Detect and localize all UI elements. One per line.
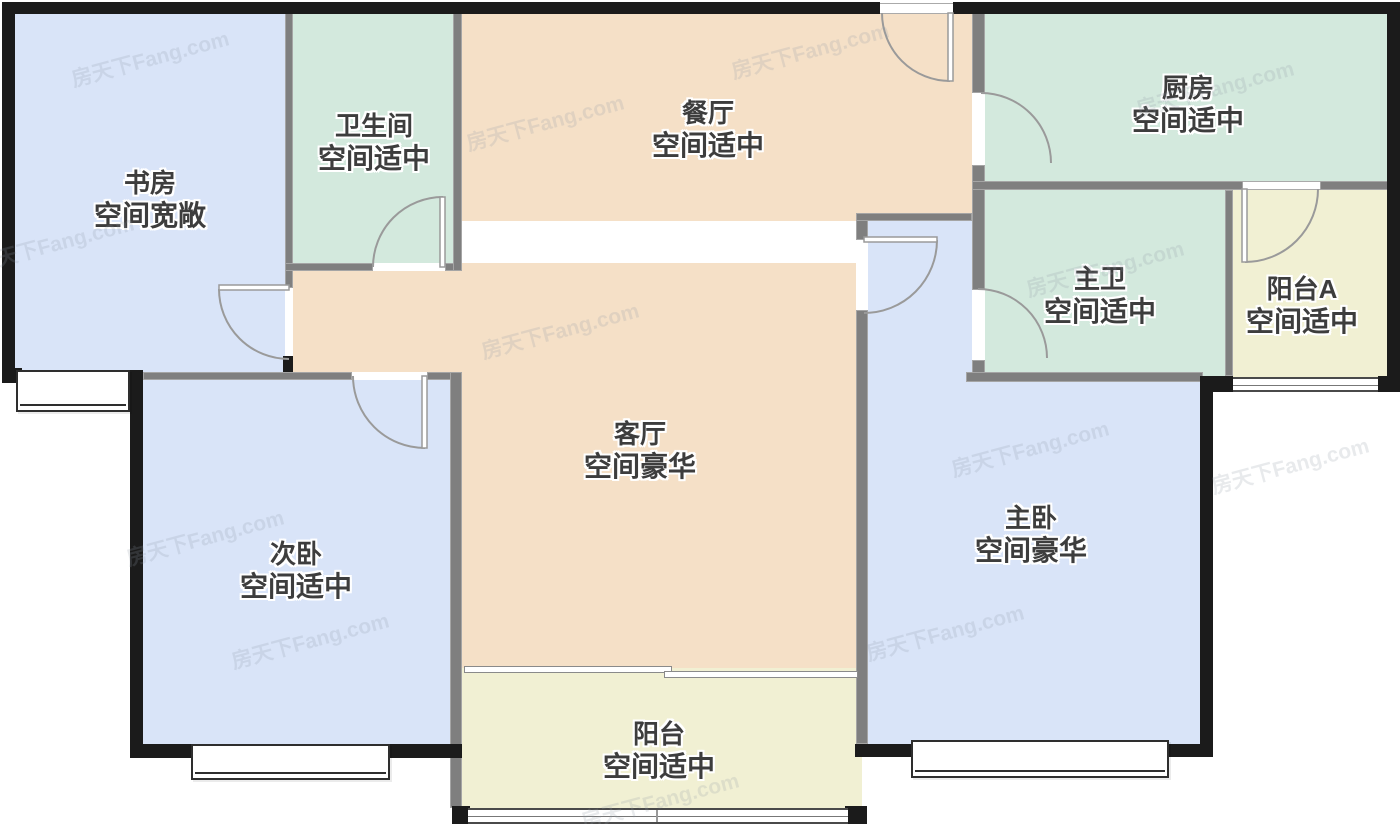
second-bedroom-bay-window — [191, 744, 390, 780]
wall-second-bedroom-right — [450, 372, 462, 808]
label-balcony-a: 阳台A 空间适中 — [1246, 274, 1358, 338]
wall-exterior-right — [1387, 2, 1400, 392]
balcony-sliding-door-left-panel — [464, 666, 672, 673]
kitchen-door-gap — [972, 93, 985, 165]
wall-second-bedroom-top-left — [143, 372, 352, 380]
wall-study-bathroom — [285, 13, 293, 288]
room-quality: 空间豪华 — [584, 450, 696, 483]
label-dining: 餐厅 空间适中 — [652, 98, 764, 162]
room-quality: 空间适中 — [240, 570, 352, 603]
room-quality: 空间豪华 — [975, 534, 1087, 567]
bathroom-door-gap — [373, 263, 445, 271]
master-bedroom-door-gap — [856, 240, 868, 310]
wall-bathroom-right — [453, 13, 462, 271]
wall-master-bath-bottom — [966, 372, 1203, 382]
wall-kitchen-bottom-left — [972, 181, 1243, 190]
room-quality: 空间适中 — [1246, 305, 1358, 338]
entry-door-threshold — [880, 3, 953, 14]
label-master-bedroom: 主卧 空间豪华 — [975, 503, 1087, 567]
wall-second-bedroom-bottom-left — [130, 744, 196, 758]
balcony-a-window — [1233, 377, 1378, 392]
master-bath-door-gap — [972, 290, 985, 360]
study-bay-window — [16, 370, 130, 412]
balcony-sliding-door-right-panel — [664, 671, 858, 678]
wall-master-bottom-left — [855, 744, 915, 757]
wall-balcony-a-corner-left — [1200, 376, 1233, 392]
room-name: 餐厅 — [652, 98, 764, 129]
wall-exterior-top-right — [953, 2, 1400, 14]
wall-kitchen-bottom-right — [1320, 181, 1392, 190]
wall-kitchen-left-upper — [972, 13, 985, 93]
label-bathroom: 卫生间 空间适中 — [318, 111, 430, 175]
room-quality: 空间适中 — [1044, 295, 1156, 328]
wall-exterior-master-right — [1200, 380, 1213, 757]
room-quality: 空间适中 — [652, 129, 764, 162]
room-name: 书房 — [94, 168, 206, 199]
label-living-room: 客厅 空间豪华 — [584, 419, 696, 483]
room-living-area — [450, 372, 868, 677]
label-second-bedroom: 次卧 空间适中 — [240, 539, 352, 603]
room-name: 客厅 — [584, 419, 696, 450]
watermark: 房天下Fang.com — [1208, 430, 1372, 501]
wall-exterior-top-left — [2, 2, 880, 14]
room-name: 主卧 — [975, 503, 1087, 534]
room-name: 阳台A — [1246, 274, 1358, 305]
wall-exterior-left — [2, 2, 15, 383]
room-quality: 空间适中 — [318, 142, 430, 175]
master-bedroom-vestibule-area — [860, 213, 978, 382]
wall-bathroom-bottom-left — [285, 263, 373, 271]
wall-balcony-corner-right — [845, 806, 867, 824]
room-name: 卫生间 — [318, 111, 430, 142]
second-bedroom-door-gap — [352, 372, 427, 380]
wall-master-bath-balcony-a — [1225, 190, 1233, 376]
wall-master-left-lower — [856, 310, 868, 744]
wall-vestibule-top — [856, 213, 972, 221]
master-bedroom-bay-window — [911, 740, 1169, 778]
wall-second-bedroom-bottom-right — [388, 744, 462, 758]
room-name: 阳台 — [603, 719, 715, 750]
room-name: 次卧 — [240, 539, 352, 570]
balcony-a-door-gap — [1243, 181, 1320, 190]
floor-plan: 书房 空间宽敞 卫生间 空间适中 餐厅 空间适中 厨房 空间适中 主卫 空间适中… — [0, 0, 1400, 824]
study-door-gap — [285, 288, 293, 356]
